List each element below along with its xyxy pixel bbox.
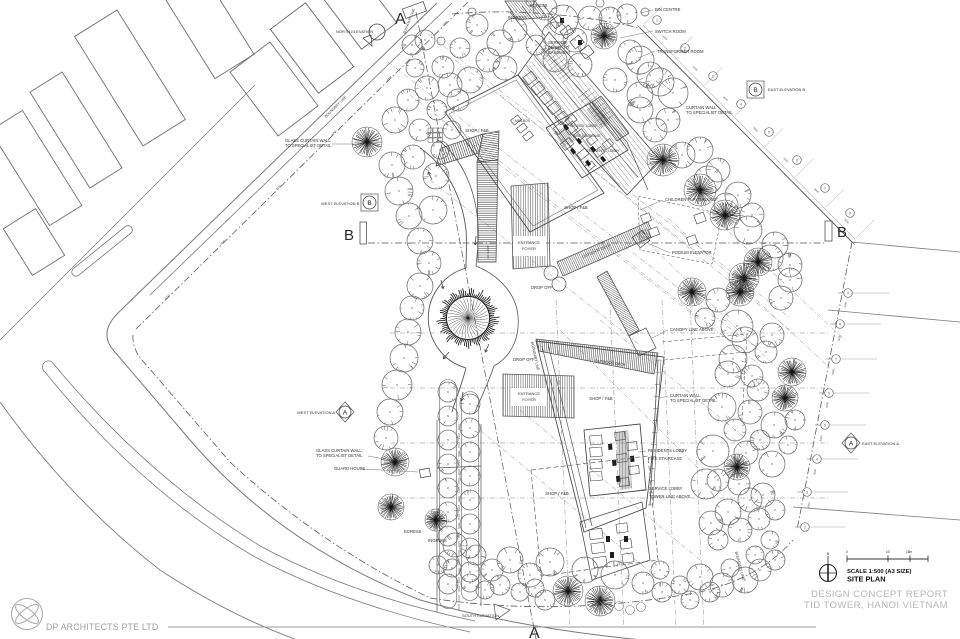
svg-text:CHILDREN PLAYGROUND: CHILDREN PLAYGROUND [665, 197, 717, 202]
svg-text:5: 5 [824, 423, 826, 427]
svg-text:B: B [753, 87, 757, 94]
svg-text:DROP OFF: DROP OFF [531, 285, 553, 290]
svg-text:6: 6 [796, 158, 798, 162]
svg-text:SHOP / F&B: SHOP / F&B [564, 205, 588, 210]
svg-text:3: 3 [806, 490, 808, 494]
svg-text:SWITCH ROOM: SWITCH ROOM [655, 29, 686, 34]
svg-text:0: 0 [846, 550, 848, 554]
svg-text:NORTH ELEVATION: NORTH ELEVATION [336, 29, 373, 34]
svg-text:8: 8 [849, 211, 851, 215]
svg-text:TRANSFORMER ROOM: TRANSFORMER ROOM [657, 49, 704, 54]
svg-text:4: 4 [816, 457, 818, 461]
svg-text:BIN CENTRE: BIN CENTRE [655, 7, 681, 12]
svg-text:TO SPECIALIST DETAIL: TO SPECIALIST DETAIL [285, 143, 332, 148]
svg-text:2: 2 [804, 525, 806, 529]
svg-text:A: A [849, 441, 854, 448]
svg-text:FOYER: FOYER [522, 246, 536, 251]
svg-text:9: 9 [847, 291, 849, 295]
svg-text:WEST ELEVATION A: WEST ELEVATION A [297, 410, 335, 415]
svg-text:EAST ELEVATION B: EAST ELEVATION B [768, 87, 805, 92]
svg-text:SHOP / F&B: SHOP / F&B [545, 491, 569, 496]
svg-text:DP ARCHITECTS PTE LTD: DP ARCHITECTS PTE LTD [46, 622, 158, 632]
svg-text:INGRESS: INGRESS [428, 538, 447, 543]
svg-text:TOWER LINE ABOVE: TOWER LINE ABOVE [649, 494, 691, 499]
svg-text:WEST ELEVATION B: WEST ELEVATION B [321, 201, 360, 206]
svg-text:FIRE STAIRCASE: FIRE STAIRCASE [573, 134, 601, 138]
svg-text:RESIDENTS LOBBY: RESIDENTS LOBBY [586, 149, 620, 153]
svg-text:SERVICE LOBBY: SERVICE LOBBY [570, 124, 598, 128]
svg-text:7: 7 [835, 357, 837, 361]
svg-text:1: 1 [656, 18, 658, 22]
svg-text:10: 10 [886, 550, 890, 554]
svg-text:TO SPECIALIST DETAIL: TO SPECIALIST DETAIL [686, 110, 733, 115]
svg-text:GUARD HOUSE: GUARD HOUSE [334, 466, 365, 471]
svg-text:SOUTH ELEVATION: SOUTH ELEVATION [462, 613, 499, 618]
svg-text:HC RAMP: HC RAMP [486, 245, 490, 258]
svg-text:4: 4 [740, 102, 742, 106]
svg-text:5: 5 [768, 130, 770, 134]
svg-text:ENTRANCE: ENTRANCE [518, 391, 540, 396]
svg-text:SITE PLAN: SITE PLAN [847, 575, 886, 584]
svg-text:PODIUM ELEVATOR: PODIUM ELEVATOR [672, 250, 712, 255]
svg-text:EGRESS: EGRESS [530, 3, 548, 8]
svg-text:ENTRANCE: ENTRANCE [518, 240, 540, 245]
svg-text:EAST ELEVATION A: EAST ELEVATION A [862, 441, 899, 446]
svg-text:INGRESS: INGRESS [508, 15, 527, 20]
svg-text:TO SPECIALIST DETAIL: TO SPECIALIST DETAIL [316, 453, 363, 458]
svg-text:DROP OFF: DROP OFF [513, 357, 535, 362]
svg-text:EGRESS: EGRESS [404, 529, 422, 534]
svg-text:MAILBOX: MAILBOX [515, 119, 531, 123]
svg-text:BASEMENT: BASEMENT [548, 50, 571, 55]
svg-text:SHOP / F&B: SHOP / F&B [589, 396, 613, 401]
svg-text:6: 6 [828, 391, 830, 395]
svg-text:B: B [344, 227, 354, 244]
svg-text:A: A [529, 625, 540, 639]
svg-text:SERVICE LOBBY: SERVICE LOBBY [649, 486, 683, 491]
svg-text:TID TOWER, HANOI VIETNAM: TID TOWER, HANOI VIETNAM [804, 600, 948, 611]
svg-text:7: 7 [824, 186, 826, 190]
svg-text:B: B [367, 200, 371, 207]
svg-text:B: B [837, 224, 847, 241]
svg-text:FOYER: FOYER [522, 397, 536, 402]
svg-text:8: 8 [839, 322, 841, 326]
svg-text:FIRE STAIRCASE: FIRE STAIRCASE [648, 456, 682, 461]
svg-text:CANOPY LINE ABOVE: CANOPY LINE ABOVE [670, 327, 714, 332]
svg-text:A: A [343, 410, 348, 417]
svg-text:15m: 15m [906, 550, 913, 554]
svg-text:DESIGN CONCEPT REPORT: DESIGN CONCEPT REPORT [811, 589, 948, 600]
svg-text:SHOP / F&B: SHOP / F&B [465, 128, 489, 133]
svg-text:TO SPECIALIST DETAIL: TO SPECIALIST DETAIL [670, 398, 717, 403]
svg-text:RESIDENTS LOBBY: RESIDENTS LOBBY [648, 448, 687, 453]
